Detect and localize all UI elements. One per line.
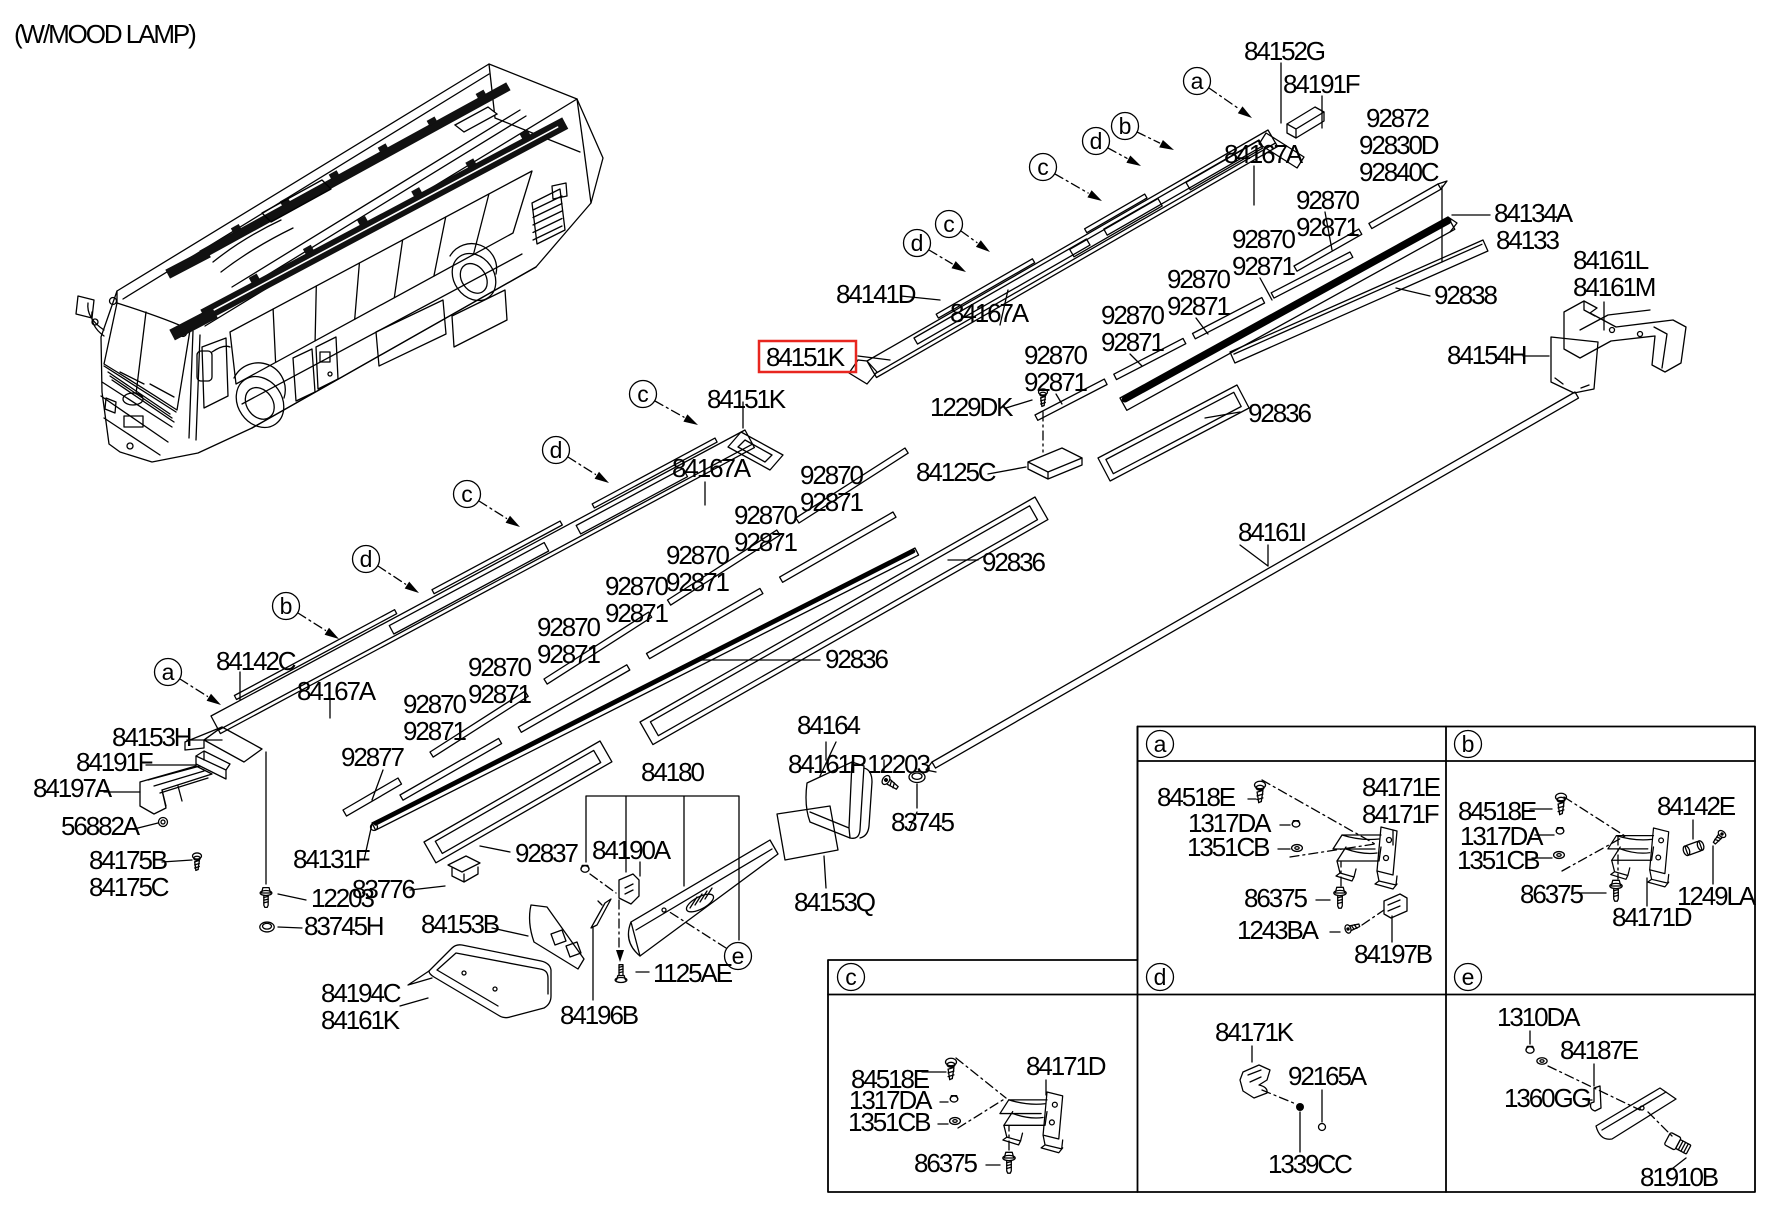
svg-text:84191F: 84191F [1283, 69, 1360, 99]
svg-text:92870: 92870 [537, 612, 600, 642]
svg-text:1339CC: 1339CC [1268, 1149, 1352, 1179]
svg-text:84171K: 84171K [1215, 1017, 1295, 1047]
svg-text:d: d [550, 437, 563, 463]
svg-text:84133: 84133 [1496, 225, 1559, 255]
svg-text:84190A: 84190A [592, 835, 672, 865]
svg-text:84167A: 84167A [1224, 139, 1304, 169]
svg-text:56882A: 56882A [61, 811, 141, 841]
svg-text:b: b [1119, 113, 1132, 139]
svg-text:92870: 92870 [734, 500, 797, 530]
svg-text:92870: 92870 [1024, 340, 1087, 370]
svg-text:83745: 83745 [891, 807, 954, 837]
svg-text:84196B: 84196B [560, 1000, 638, 1030]
svg-text:92871: 92871 [800, 487, 863, 517]
svg-text:92872: 92872 [1366, 103, 1429, 133]
svg-text:92871: 92871 [1296, 212, 1359, 242]
svg-text:84161I: 84161I [1238, 517, 1305, 547]
svg-text:92871: 92871 [1232, 251, 1295, 281]
svg-text:c: c [943, 211, 955, 237]
svg-text:e: e [1462, 964, 1475, 990]
svg-text:92870: 92870 [605, 571, 668, 601]
svg-text:92165A: 92165A [1288, 1061, 1368, 1091]
svg-text:92871: 92871 [1167, 291, 1230, 321]
svg-text:84197B: 84197B [1354, 939, 1432, 969]
svg-text:92870: 92870 [666, 540, 729, 570]
svg-text:b: b [1462, 731, 1475, 757]
svg-text:1229DK: 1229DK [930, 392, 1014, 422]
svg-text:1351CB: 1351CB [1187, 832, 1269, 862]
svg-text:84171D: 84171D [1026, 1051, 1106, 1081]
svg-text:84197A: 84197A [33, 773, 113, 803]
svg-text:84161P: 84161P [788, 749, 866, 779]
svg-text:84194C: 84194C [321, 978, 401, 1008]
svg-text:d: d [1154, 964, 1167, 990]
svg-text:92836: 92836 [1248, 398, 1311, 428]
svg-text:92870: 92870 [800, 460, 863, 490]
svg-text:84167A: 84167A [297, 676, 377, 706]
svg-text:92830D: 92830D [1359, 130, 1439, 160]
svg-text:86375: 86375 [914, 1148, 977, 1178]
svg-text:84175C: 84175C [89, 872, 169, 902]
svg-text:92871: 92871 [666, 567, 729, 597]
svg-text:84167A: 84167A [950, 298, 1030, 328]
svg-text:84171F: 84171F [1362, 799, 1439, 829]
svg-text:c: c [637, 381, 649, 407]
svg-text:c: c [461, 481, 473, 507]
svg-text:84151K: 84151K [766, 342, 846, 372]
svg-text:1351CB: 1351CB [848, 1107, 930, 1137]
svg-text:92836: 92836 [825, 644, 888, 674]
svg-text:92870: 92870 [1167, 264, 1230, 294]
svg-text:a: a [162, 659, 175, 685]
svg-text:84161K: 84161K [321, 1005, 401, 1035]
svg-text:92837: 92837 [515, 838, 578, 868]
svg-text:84171E: 84171E [1362, 772, 1441, 802]
svg-text:84125C: 84125C [916, 457, 996, 487]
svg-text:1360GG: 1360GG [1504, 1083, 1591, 1113]
svg-text:84142E: 84142E [1657, 791, 1736, 821]
svg-text:1125AE: 1125AE [653, 958, 733, 988]
svg-text:b: b [280, 593, 293, 619]
svg-text:92871: 92871 [734, 527, 797, 557]
svg-text:84141D: 84141D [836, 279, 916, 309]
svg-text:(W/MOOD LAMP): (W/MOOD LAMP) [14, 19, 196, 49]
svg-text:84167A: 84167A [672, 453, 752, 483]
svg-text:92870: 92870 [1101, 300, 1164, 330]
svg-text:81910B: 81910B [1640, 1162, 1718, 1192]
svg-text:92871: 92871 [605, 598, 668, 628]
svg-text:92871: 92871 [403, 716, 466, 746]
svg-text:83745H: 83745H [304, 911, 383, 941]
svg-text:92871: 92871 [468, 679, 531, 709]
svg-text:92871: 92871 [1101, 327, 1164, 357]
svg-text:92877: 92877 [341, 742, 404, 772]
svg-text:84164: 84164 [797, 710, 860, 740]
svg-text:84142C: 84142C [216, 646, 296, 676]
svg-text:92870: 92870 [1296, 185, 1359, 215]
svg-text:a: a [1154, 731, 1167, 757]
svg-text:12203: 12203 [867, 749, 930, 779]
svg-text:92871: 92871 [1024, 367, 1087, 397]
svg-text:84151K: 84151K [707, 384, 787, 414]
svg-text:84187E: 84187E [1560, 1035, 1639, 1065]
svg-text:84153B: 84153B [421, 909, 499, 939]
svg-text:86375: 86375 [1520, 879, 1583, 909]
svg-text:a: a [1191, 68, 1204, 94]
svg-text:84152G: 84152G [1244, 36, 1325, 66]
svg-text:92870: 92870 [468, 652, 531, 682]
svg-text:92870: 92870 [1232, 224, 1295, 254]
svg-text:84175B: 84175B [89, 845, 167, 875]
svg-text:92840C: 92840C [1359, 157, 1439, 187]
svg-text:92838: 92838 [1434, 280, 1497, 310]
svg-text:84161M: 84161M [1573, 272, 1655, 302]
svg-text:83776: 83776 [352, 874, 415, 904]
svg-text:1243BA: 1243BA [1237, 915, 1320, 945]
svg-text:1310DA: 1310DA [1497, 1002, 1581, 1032]
svg-text:84161L: 84161L [1573, 245, 1649, 275]
svg-text:84154H: 84154H [1447, 340, 1526, 370]
svg-text:d: d [360, 546, 373, 572]
svg-text:c: c [845, 964, 857, 990]
svg-text:84153Q: 84153Q [794, 887, 875, 917]
svg-text:86375: 86375 [1244, 883, 1307, 913]
svg-text:84171D: 84171D [1612, 902, 1692, 932]
svg-text:92870: 92870 [403, 689, 466, 719]
svg-text:92871: 92871 [537, 639, 600, 669]
svg-text:84180: 84180 [641, 757, 704, 787]
svg-text:e: e [732, 943, 745, 969]
svg-text:84131F: 84131F [293, 844, 370, 874]
svg-text:1351CB: 1351CB [1457, 845, 1539, 875]
svg-text:92836: 92836 [982, 547, 1045, 577]
svg-text:c: c [1037, 154, 1049, 180]
svg-text:84134A: 84134A [1494, 198, 1574, 228]
svg-text:d: d [911, 230, 924, 256]
svg-text:d: d [1090, 128, 1103, 154]
